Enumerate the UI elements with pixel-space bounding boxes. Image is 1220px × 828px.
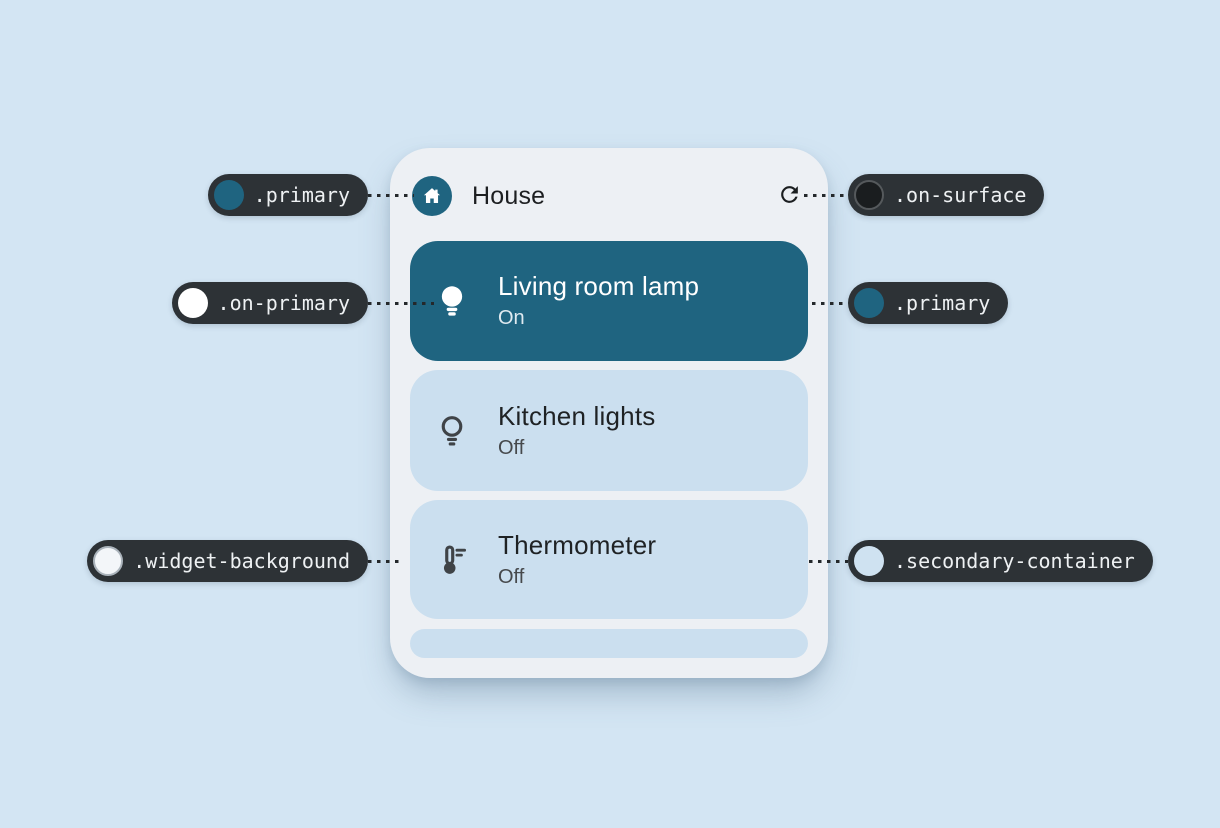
device-name: Thermometer bbox=[498, 528, 808, 562]
color-swatch-on-primary bbox=[178, 288, 208, 318]
color-swatch-widget-background bbox=[93, 546, 123, 576]
device-status: Off bbox=[498, 562, 808, 592]
device-row-living-room-lamp[interactable]: Living room lamp On bbox=[410, 241, 808, 361]
device-status: Off bbox=[498, 433, 808, 463]
color-swatch-primary bbox=[854, 288, 884, 318]
annotation-primary-header: .primary bbox=[208, 174, 368, 216]
annotation-label: .secondary-container bbox=[894, 549, 1135, 573]
lightbulb-on-icon bbox=[431, 280, 473, 322]
home-icon-badge bbox=[412, 176, 452, 216]
thermostat-icon bbox=[431, 539, 473, 581]
leader-line-widget-background bbox=[368, 560, 402, 563]
leader-line-primary-header bbox=[368, 194, 414, 197]
annotation-label: .primary bbox=[254, 183, 350, 207]
leader-line-on-surface bbox=[804, 194, 848, 197]
device-name: Living room lamp bbox=[498, 269, 808, 303]
annotation-widget-background: .widget-background bbox=[87, 540, 368, 582]
annotation-label: .primary bbox=[894, 291, 990, 315]
partial-device-row bbox=[410, 629, 808, 658]
home-widget-card: House Living room lamp On bbox=[390, 148, 828, 678]
annotation-primary-row: .primary bbox=[848, 282, 1008, 324]
device-name: Kitchen lights bbox=[498, 399, 808, 433]
lightbulb-off-icon bbox=[431, 410, 473, 452]
color-swatch-primary bbox=[214, 180, 244, 210]
home-icon bbox=[421, 185, 443, 207]
widget-header: House bbox=[412, 176, 545, 216]
leader-line-primary-row bbox=[812, 302, 848, 305]
annotation-label: .on-surface bbox=[894, 183, 1026, 207]
leader-line-on-primary bbox=[368, 302, 434, 305]
annotation-secondary-container: .secondary-container bbox=[848, 540, 1153, 582]
device-row-kitchen-lights[interactable]: Kitchen lights Off bbox=[410, 370, 808, 491]
leader-line-secondary-container bbox=[809, 560, 848, 563]
color-swatch-on-surface bbox=[854, 180, 884, 210]
theming-diagram: House Living room lamp On bbox=[0, 0, 1220, 828]
device-row-thermometer[interactable]: Thermometer Off bbox=[410, 500, 808, 619]
refresh-icon[interactable] bbox=[776, 181, 802, 207]
annotation-on-surface: .on-surface bbox=[848, 174, 1044, 216]
device-status: On bbox=[498, 303, 808, 333]
annotation-on-primary: .on-primary bbox=[172, 282, 368, 324]
color-swatch-secondary-container bbox=[854, 546, 884, 576]
annotation-label: .on-primary bbox=[218, 291, 350, 315]
widget-title: House bbox=[472, 182, 545, 211]
annotation-label: .widget-background bbox=[133, 549, 350, 573]
